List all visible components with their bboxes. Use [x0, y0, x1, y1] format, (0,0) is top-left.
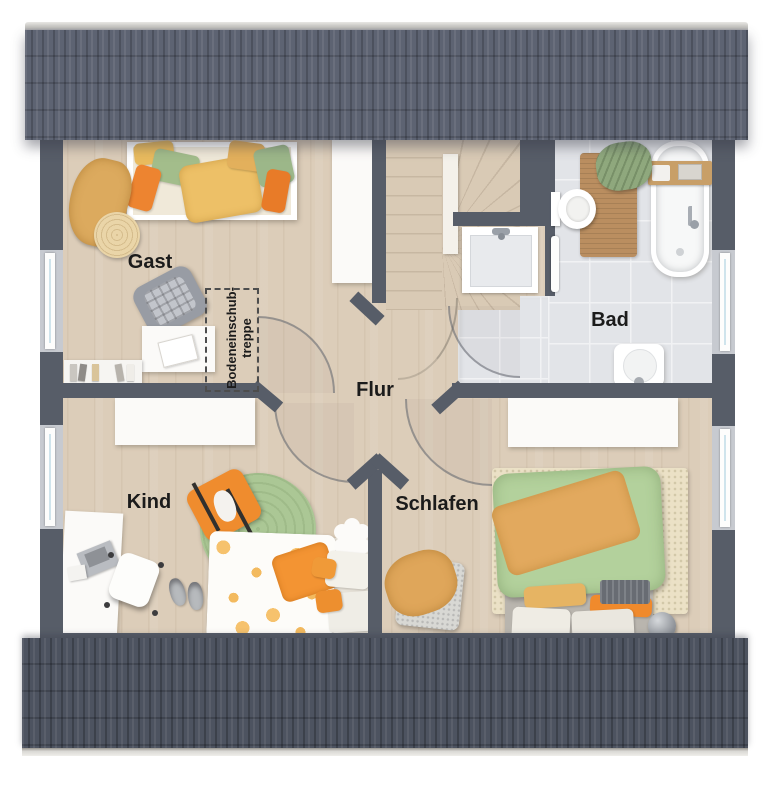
book	[78, 364, 87, 382]
roof-edge-bottom	[22, 748, 748, 756]
wall-gast-stair	[372, 138, 386, 303]
staircase-straight-flight	[386, 138, 442, 310]
pillow-orange	[310, 556, 337, 580]
pillow-orange	[315, 588, 344, 613]
window	[40, 250, 63, 352]
book	[70, 364, 77, 381]
attic-hatch-label: Bodeneinschub- treppe	[185, 283, 295, 393]
wall-kind-schlafen	[368, 470, 382, 650]
window-glass	[724, 435, 726, 521]
wall-exterior-right	[712, 138, 735, 650]
shower-base	[470, 235, 532, 287]
wall-flur-schlafen	[452, 383, 712, 398]
roof-top	[25, 30, 748, 140]
bathtub-drain	[676, 248, 684, 256]
room-label-kind: Kind	[117, 491, 181, 514]
attic-hatch-label-line1: Bodeneinschub-	[225, 287, 240, 389]
pillow-yellow	[523, 583, 586, 609]
towel-roll	[652, 165, 670, 181]
bathtub-faucet-knob	[690, 220, 699, 229]
book	[92, 364, 99, 381]
room-label-bad: Bad	[580, 309, 640, 332]
book	[115, 364, 125, 382]
wall-shower	[453, 212, 555, 226]
room-label-flur: Flur	[343, 379, 407, 402]
chair-caster	[152, 610, 158, 616]
flower-side-table	[342, 528, 362, 548]
wardrobe	[332, 139, 373, 283]
chair-caster	[104, 602, 110, 608]
wall-exterior-left	[40, 138, 63, 650]
window-glass	[49, 434, 51, 520]
window-glass	[49, 259, 51, 343]
roof-bottom	[22, 638, 748, 748]
wall-stair-bad	[520, 138, 555, 216]
room-label-schlafen: Schlafen	[387, 493, 487, 516]
attic-hatch-label-line2: treppe	[240, 318, 255, 358]
window	[712, 426, 735, 530]
window	[40, 425, 63, 529]
book	[127, 364, 134, 381]
staircase-center-wall	[443, 154, 458, 254]
caddy-box	[678, 164, 702, 180]
room-label-gast: Gast	[118, 251, 182, 274]
window-glass	[724, 259, 726, 345]
wardrobe	[508, 398, 678, 447]
bed-tray	[600, 580, 650, 604]
shower-drain	[498, 233, 505, 240]
wardrobe	[115, 398, 255, 445]
chair-caster	[108, 552, 114, 558]
towel-rail	[551, 236, 559, 292]
toilet-seat	[566, 196, 590, 222]
floorplan-canvas: Bodeneinschub- treppe Gast Bad Flur Kind…	[0, 0, 775, 786]
window	[712, 250, 735, 354]
